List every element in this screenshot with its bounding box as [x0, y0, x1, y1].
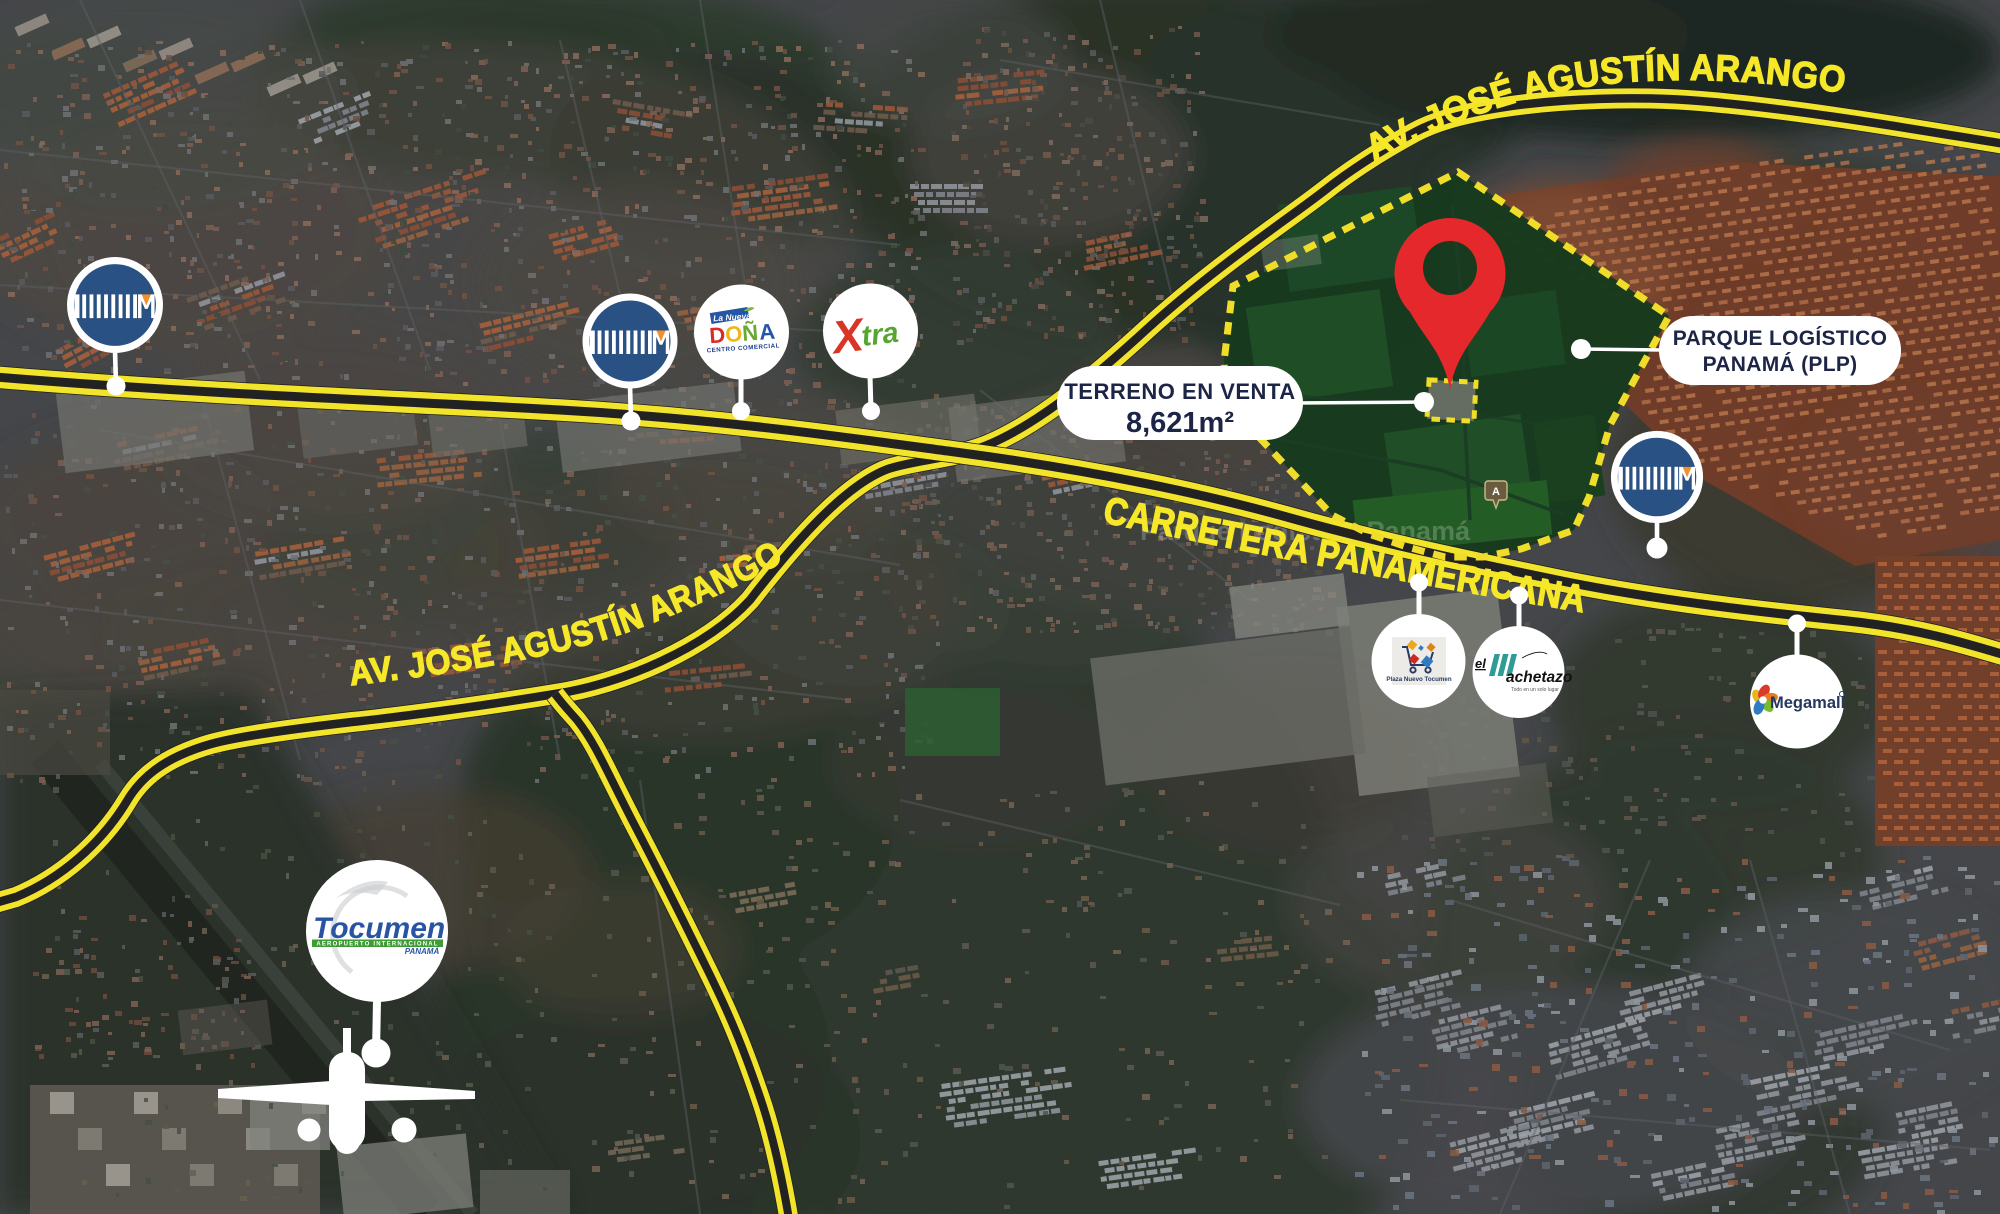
svg-text:Megamall: Megamall	[1770, 694, 1845, 712]
svg-text:achetazo: achetazo	[1506, 669, 1572, 686]
svg-text:A: A	[1492, 486, 1500, 498]
svg-text:O: O	[724, 321, 743, 347]
svg-text:tra: tra	[860, 317, 901, 353]
svg-text:A: A	[758, 319, 776, 345]
svg-text:Ñ: Ñ	[741, 320, 759, 346]
svg-text:el: el	[1475, 656, 1486, 671]
svg-text:PARQUE LOGÍSTICO: PARQUE LOGÍSTICO	[1673, 327, 1887, 350]
svg-text:8,621m²: 8,621m²	[1126, 407, 1234, 439]
svg-text:PANAMÁ: PANAMÁ	[405, 947, 440, 956]
svg-text:Todo en un solo lugar: Todo en un solo lugar	[1511, 687, 1559, 693]
svg-text:Plaza Nuevo Tocumen: Plaza Nuevo Tocumen	[1386, 676, 1451, 683]
svg-text:PANAMÁ (PLP): PANAMÁ (PLP)	[1703, 353, 1858, 376]
svg-text:TERRENO EN VENTA: TERRENO EN VENTA	[1064, 379, 1295, 404]
svg-text:D: D	[708, 322, 726, 348]
